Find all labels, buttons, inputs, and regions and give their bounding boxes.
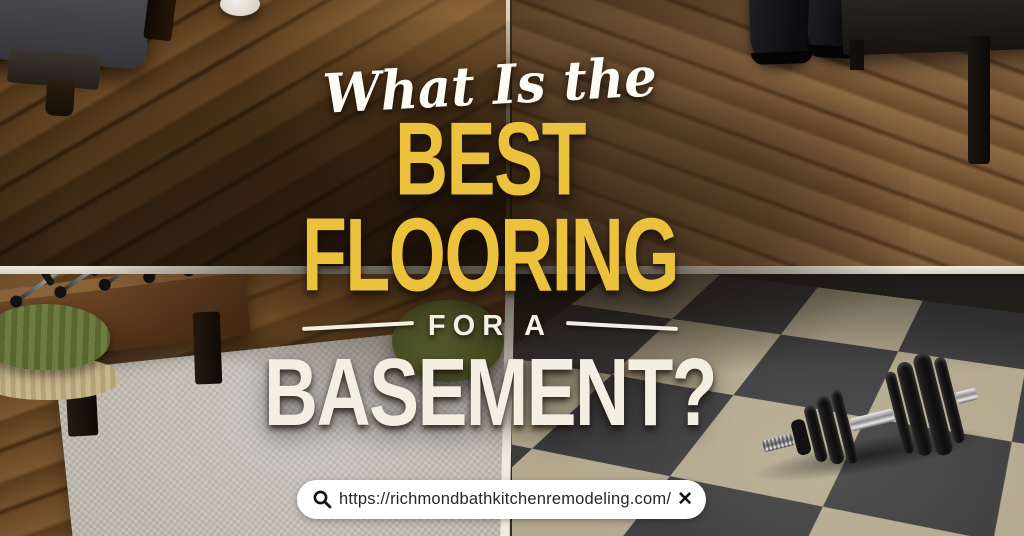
dumbbell-tip	[955, 388, 978, 405]
white-object	[220, 0, 260, 16]
title-basement-line: BASEMENT?	[223, 349, 757, 437]
hero-image: What Is the BEST FLOORING FOR A BASEMENT…	[0, 0, 1024, 536]
title-block: What Is the BEST FLOORING FOR A BASEMENT…	[148, 58, 832, 437]
url-bar[interactable]: https://richmondbathkitchenremodeling.co…	[297, 480, 706, 519]
sofa-leg	[45, 79, 75, 116]
dumbbell-handle	[849, 408, 895, 431]
close-icon[interactable]: ✕	[677, 490, 693, 509]
decor-line-left	[302, 321, 414, 331]
search-icon[interactable]	[312, 489, 333, 510]
bench-leg	[968, 36, 990, 164]
url-text[interactable]: https://richmondbathkitchenremodeling.co…	[333, 490, 677, 509]
title-main-line: BEST FLOORING	[244, 112, 736, 303]
decor-line-right	[566, 321, 678, 331]
